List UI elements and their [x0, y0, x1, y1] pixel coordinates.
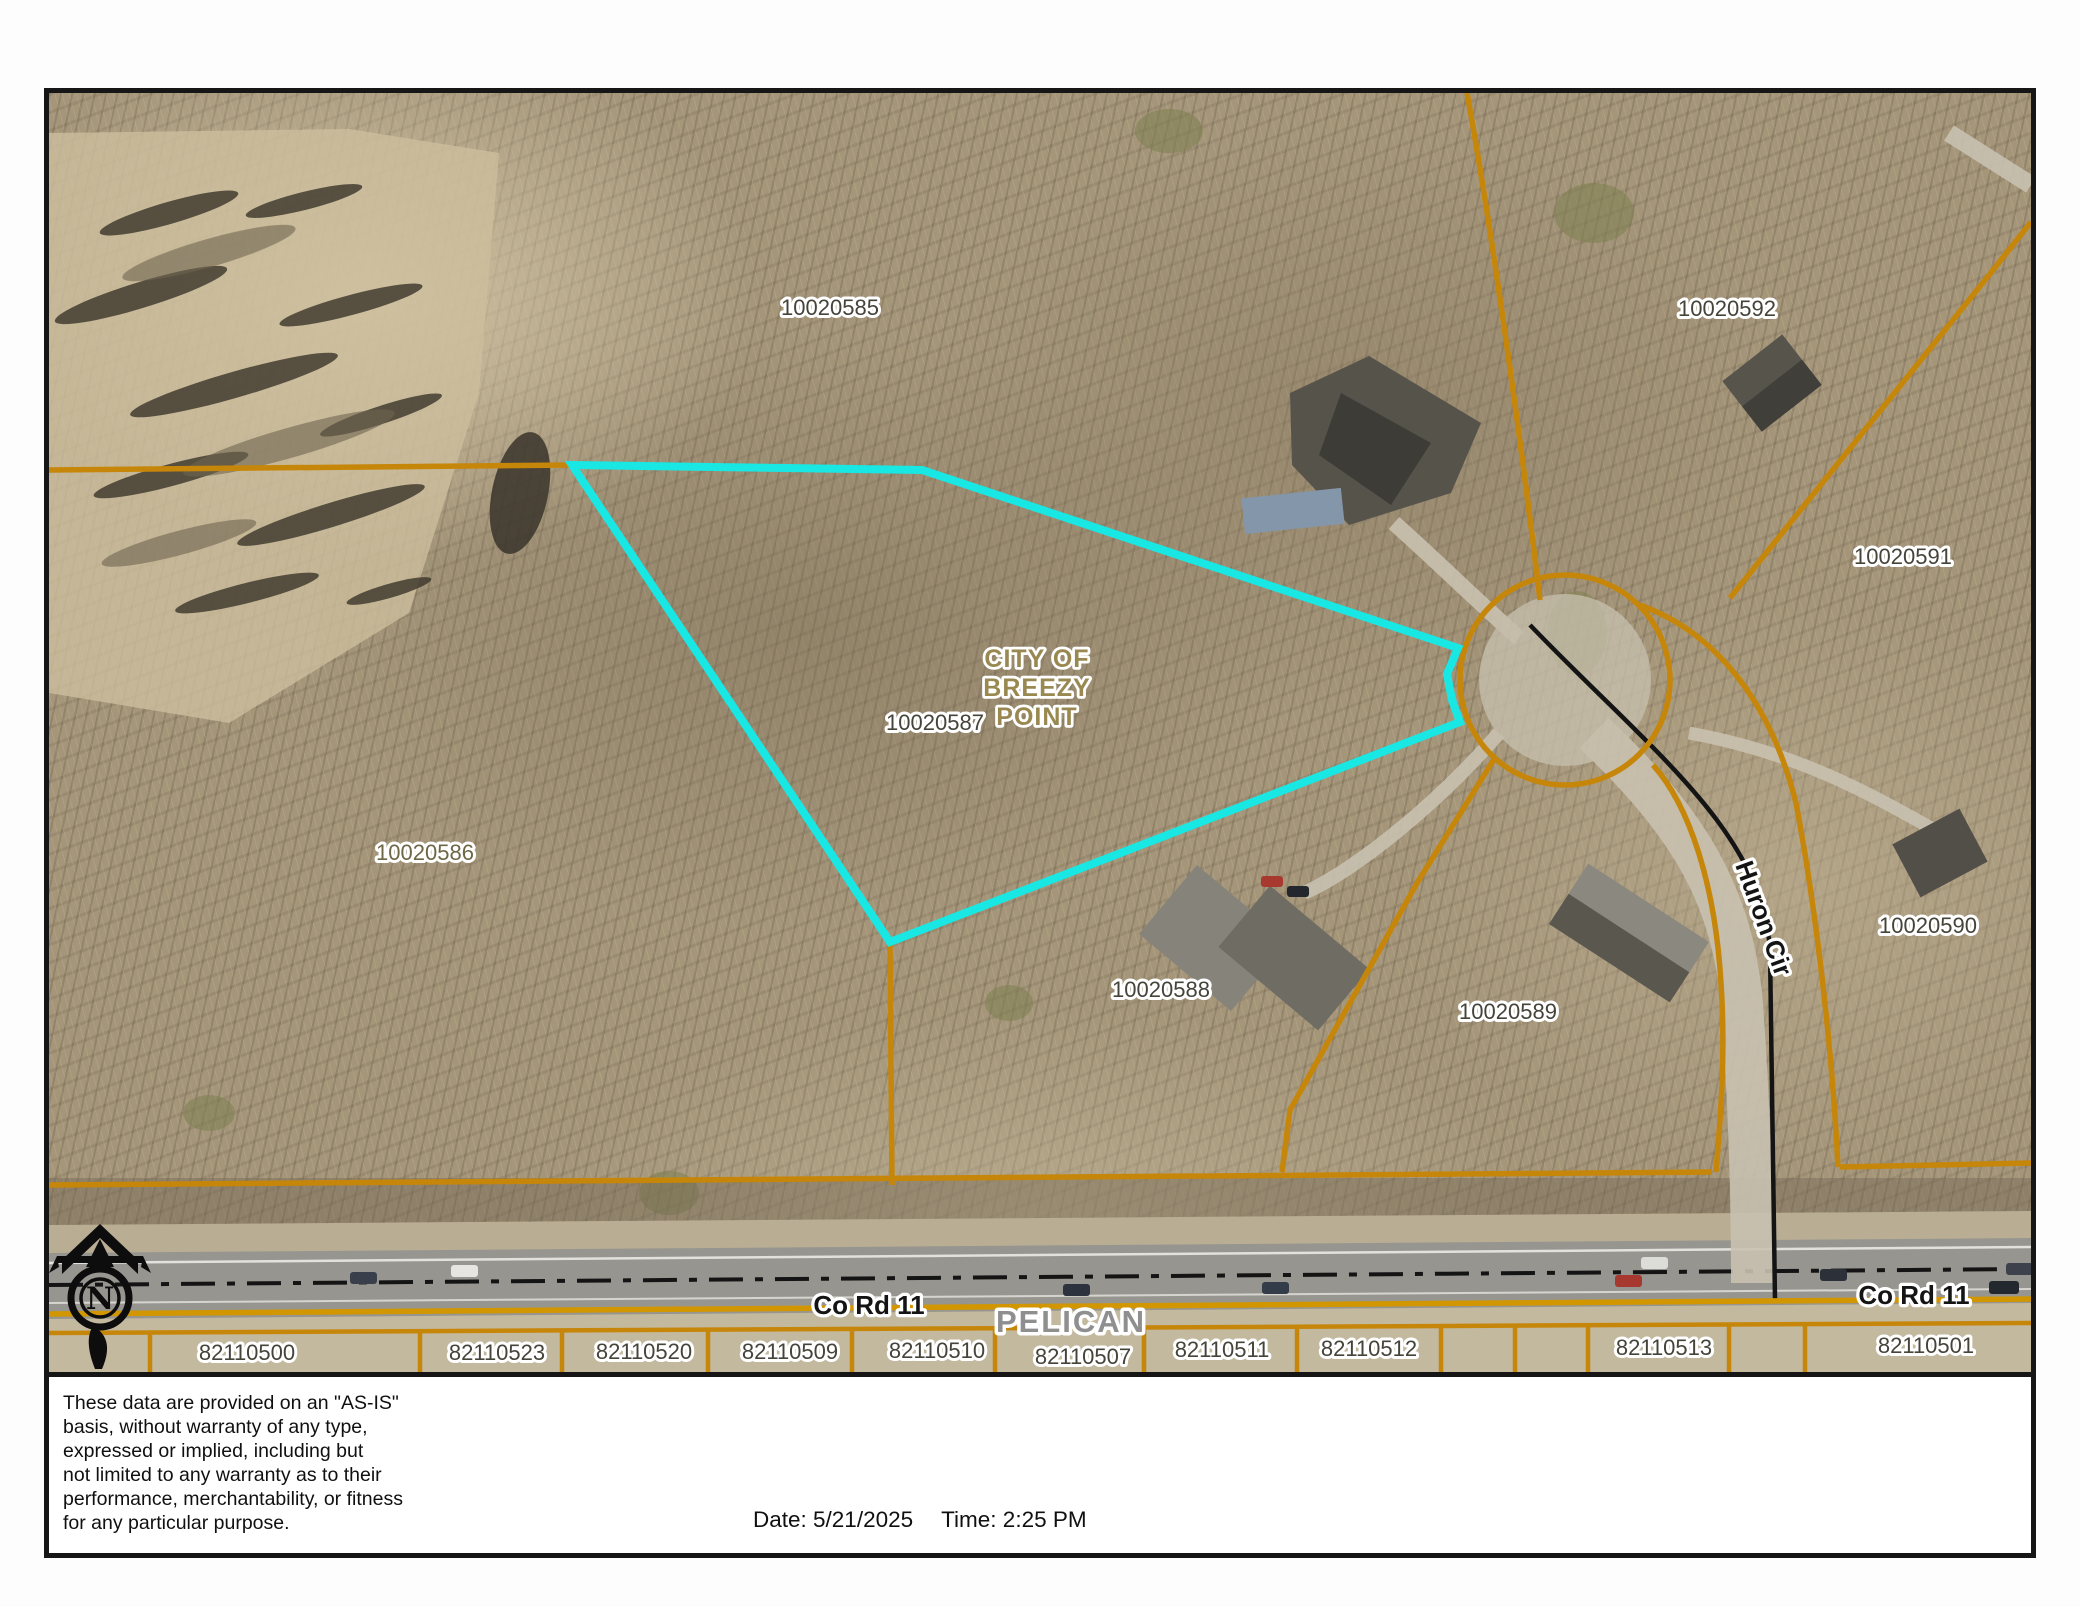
footer-strip: These data are provided on an "AS-IS" ba…: [49, 1377, 2031, 1553]
bottom-parcel-82110501: 82110501: [1878, 1333, 1974, 1358]
parcel-label-10020592: 10020592: [1678, 296, 1776, 321]
map-overlay-svg: N 10020585 10020592 10020591 10020587 10…: [49, 93, 2031, 1372]
pond: [480, 427, 561, 560]
city-overlay-line2: BREEZY: [983, 674, 1090, 702]
house-south-center: [1139, 865, 1369, 1030]
city-overlay-line3: POINT: [996, 703, 1077, 731]
house-southeast: [1549, 864, 1709, 1003]
township-label-pelican: PELICAN: [996, 1304, 1146, 1339]
bottom-parcel-82110509: 82110509: [742, 1339, 838, 1364]
parcel-label-10020587: 10020587: [886, 710, 984, 735]
parcel-label-10020588: 10020588: [1112, 977, 1210, 1002]
house-east-edge: [1892, 809, 1987, 898]
parcel-label-10020586: 10020586: [376, 840, 474, 865]
house-north-center: [1241, 356, 1481, 534]
bottom-parcel-82110523: 82110523: [449, 1340, 545, 1365]
bottom-parcel-82110513: 82110513: [1616, 1335, 1712, 1360]
road-label-co-rd-11-left: Co Rd 11: [813, 1290, 924, 1320]
date-text: Date: 5/21/2025: [753, 1507, 913, 1532]
blue-tarp: [1241, 488, 1344, 534]
city-overlay-line1: CITY OF: [984, 645, 1089, 673]
wetland-area: [49, 129, 560, 723]
parcel-label-10020591: 10020591: [1854, 544, 1952, 569]
time-text: Time: 2:25 PM: [941, 1507, 1086, 1532]
parcel-label-10020585: 10020585: [781, 295, 879, 320]
bottom-parcel-82110512: 82110512: [1321, 1336, 1417, 1361]
aerial-imagery: N 10020585 10020592 10020591 10020587 10…: [49, 93, 2031, 1372]
bottom-parcel-82110507: 82110507: [1035, 1344, 1131, 1369]
road-label-co-rd-11-right: Co Rd 11: [1858, 1280, 1969, 1310]
bottom-parcel-82110520: 82110520: [596, 1339, 692, 1364]
north-letter: N: [86, 1281, 114, 1317]
house-northeast: [1722, 334, 1821, 431]
map-frame: N 10020585 10020592 10020591 10020587 10…: [44, 88, 2036, 1558]
bottom-parcel-82110500: 82110500: [199, 1340, 295, 1365]
parcel-label-10020590: 10020590: [1879, 913, 1977, 938]
datetime-stamp: Date: 5/21/2025Time: 2:25 PM: [753, 1507, 1087, 1533]
disclaimer-text: These data are provided on an "AS-IS" ba…: [63, 1391, 543, 1535]
bottom-parcel-82110511: 82110511: [1175, 1337, 1270, 1362]
parcel-label-10020589: 10020589: [1459, 999, 1557, 1024]
bottom-parcel-82110510: 82110510: [889, 1338, 985, 1363]
plot-page: { "map": { "parcel_labels": { "p10020585…: [0, 0, 2080, 1607]
